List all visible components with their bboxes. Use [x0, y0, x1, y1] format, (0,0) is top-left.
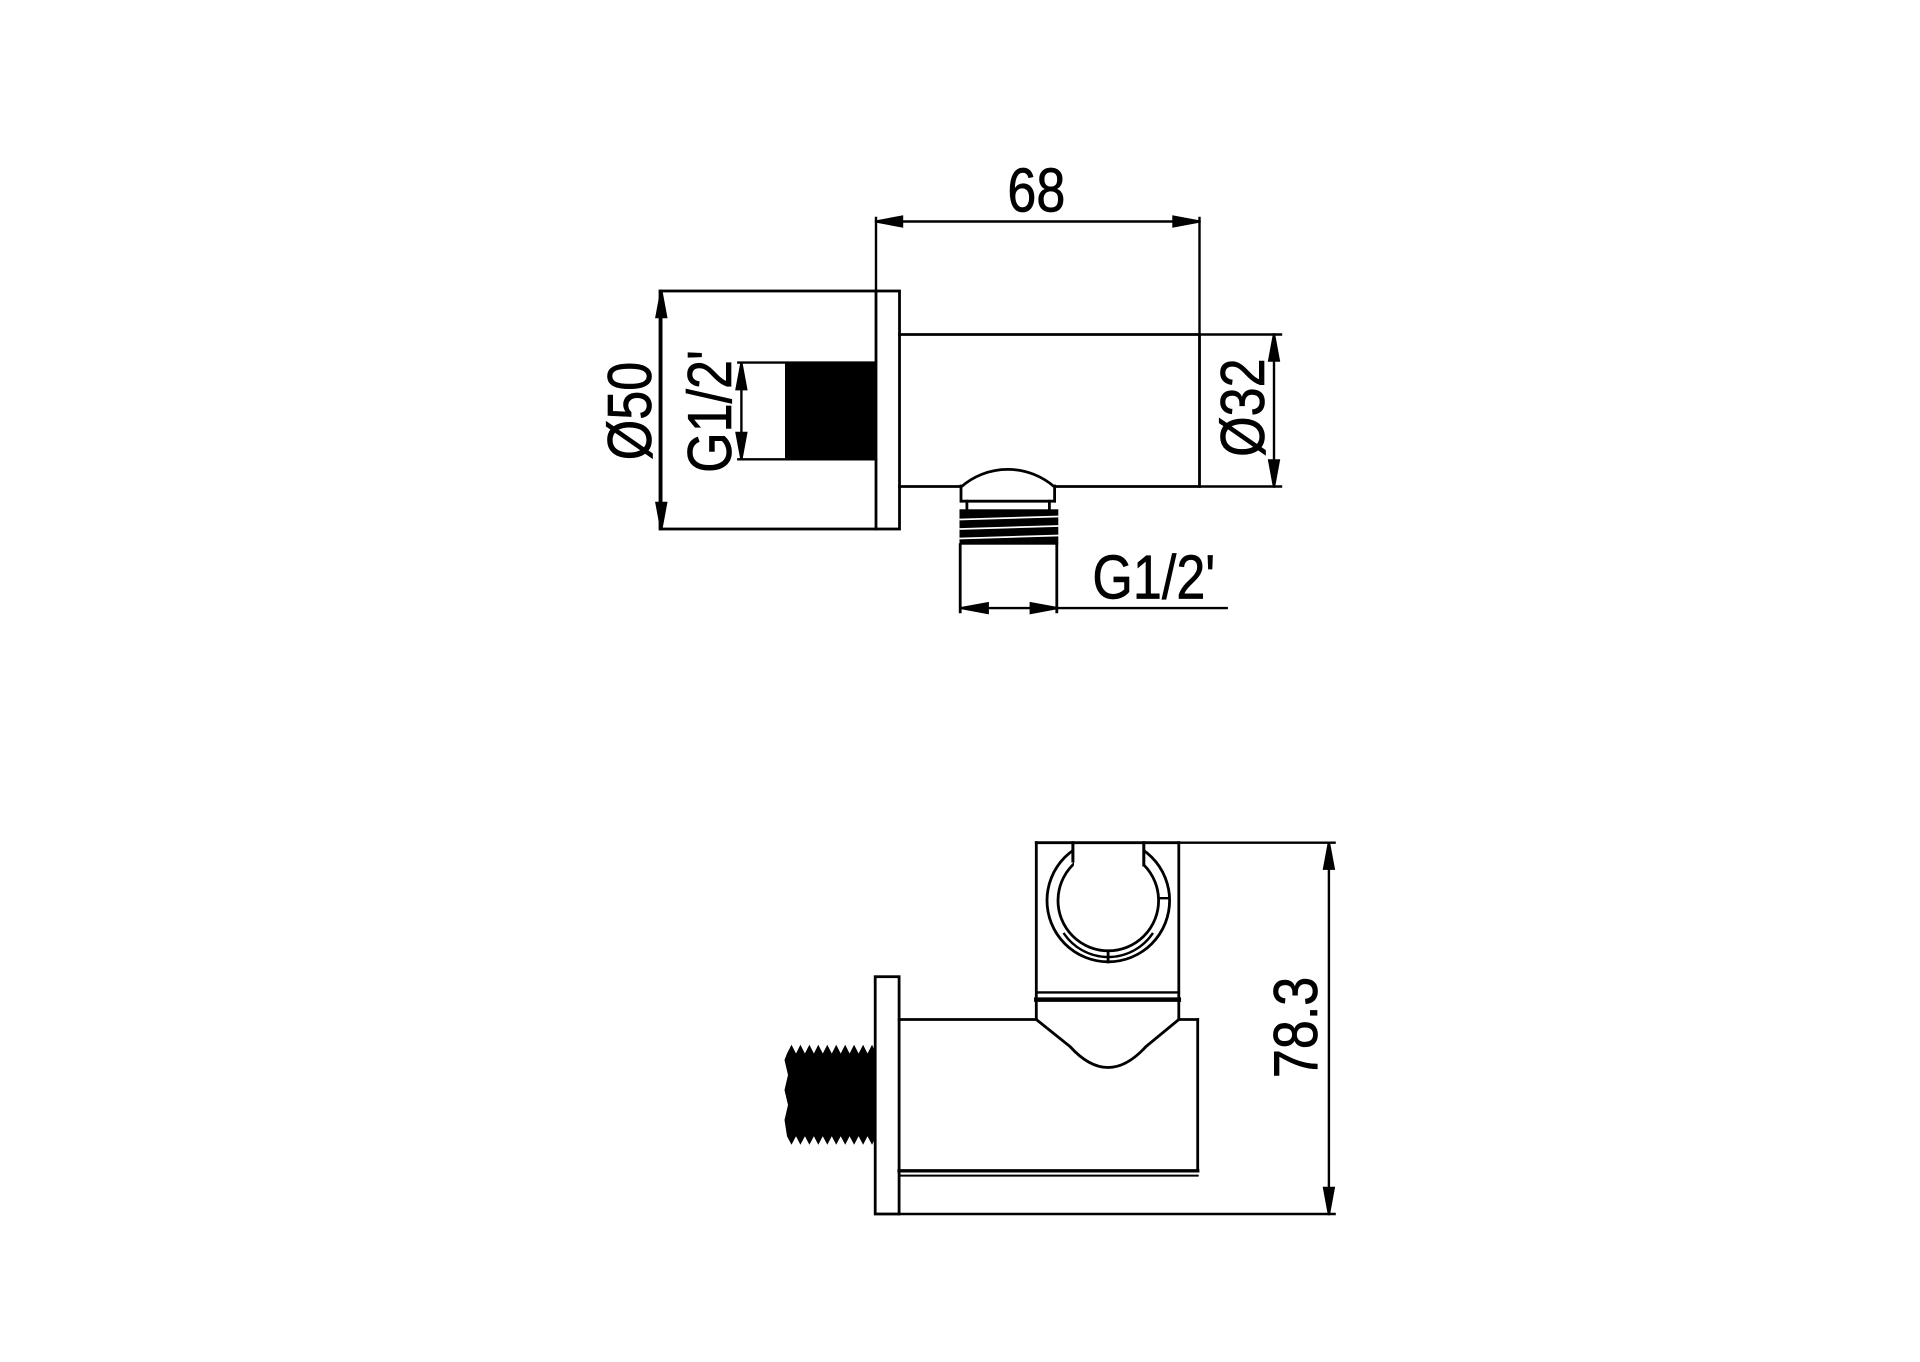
svg-text:G1/2': G1/2' — [1092, 543, 1215, 612]
svg-text:78.3: 78.3 — [1262, 977, 1331, 1078]
svg-text:G1/2': G1/2' — [676, 350, 745, 473]
svg-text:Ø32: Ø32 — [1209, 358, 1278, 456]
svg-text:68: 68 — [1007, 156, 1065, 225]
svg-text:Ø50: Ø50 — [596, 362, 665, 460]
